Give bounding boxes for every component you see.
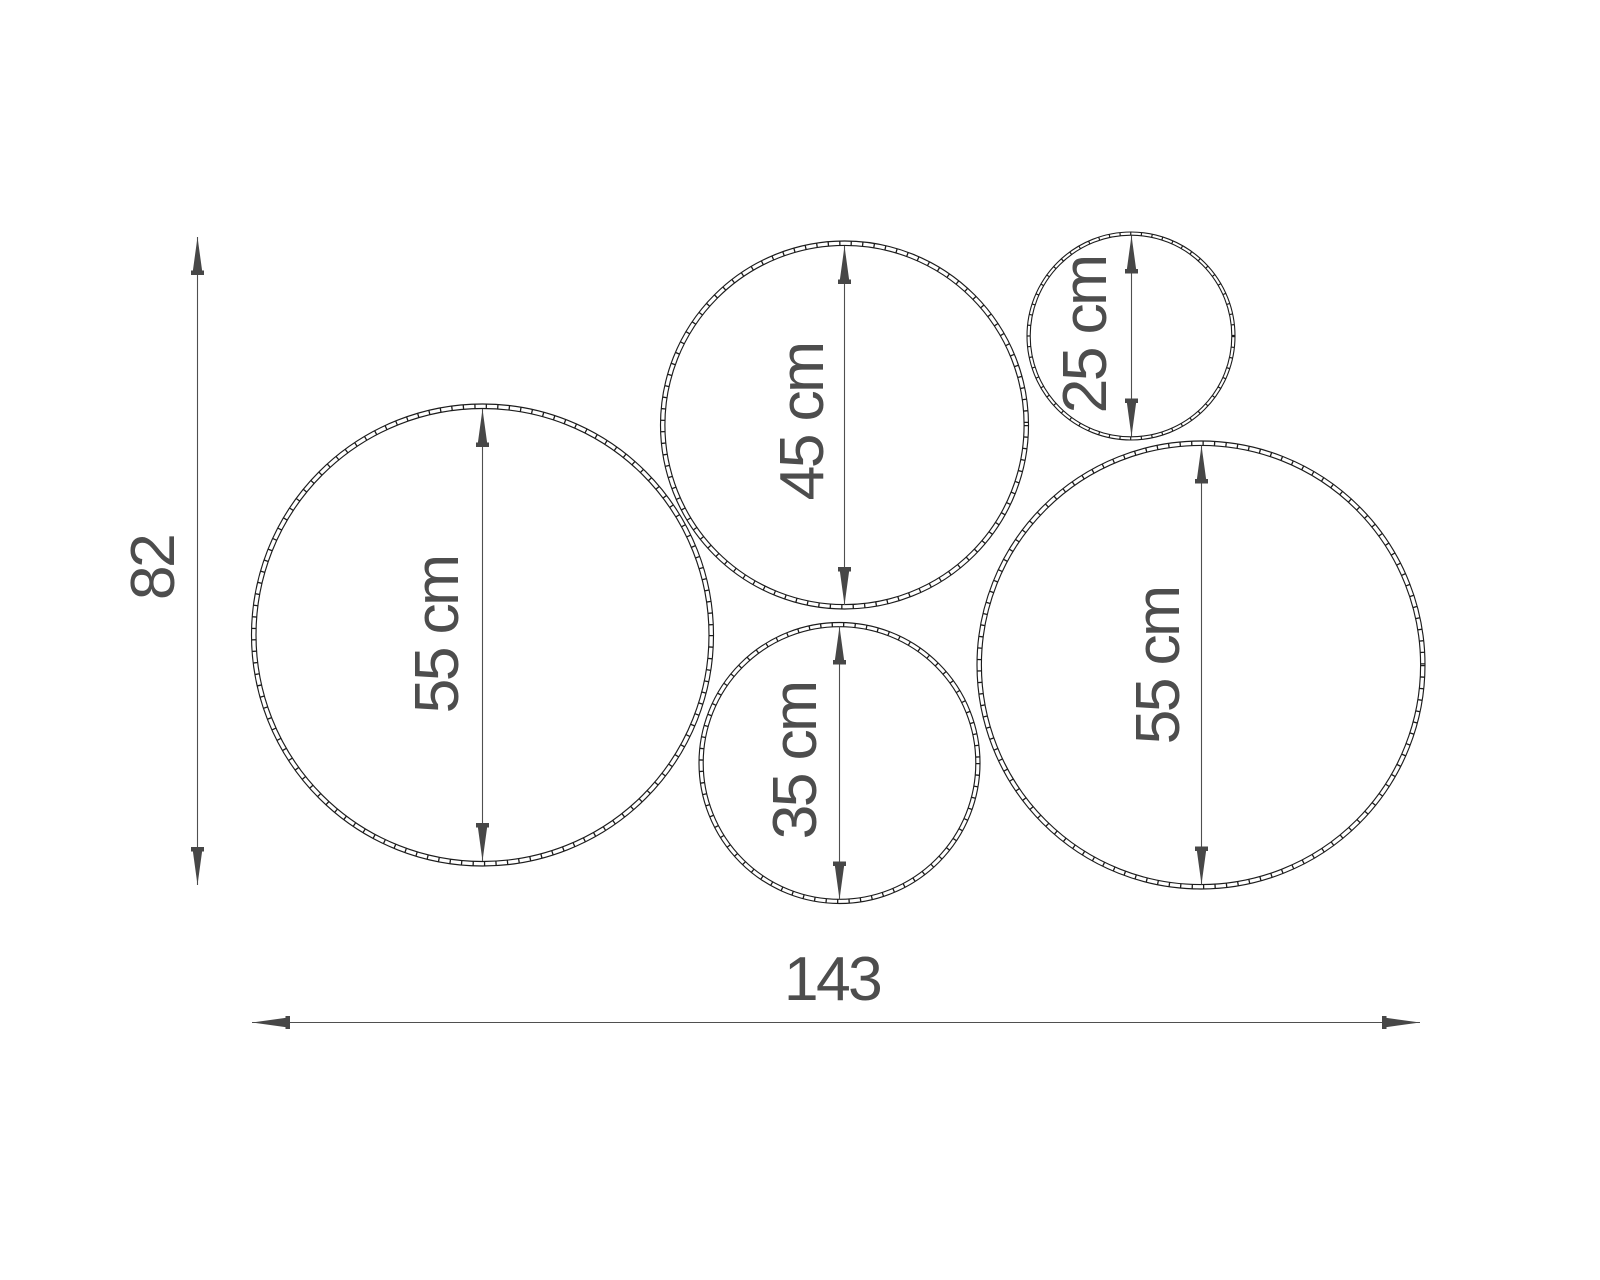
svg-text:82: 82 [118, 536, 188, 600]
svg-text:35 cm: 35 cm [760, 683, 830, 840]
svg-text:143: 143 [784, 944, 881, 1014]
svg-text:45 cm: 45 cm [767, 344, 837, 501]
svg-text:25 cm: 25 cm [1050, 257, 1120, 414]
svg-text:55 cm: 55 cm [1123, 588, 1193, 745]
svg-text:55 cm: 55 cm [402, 557, 472, 714]
